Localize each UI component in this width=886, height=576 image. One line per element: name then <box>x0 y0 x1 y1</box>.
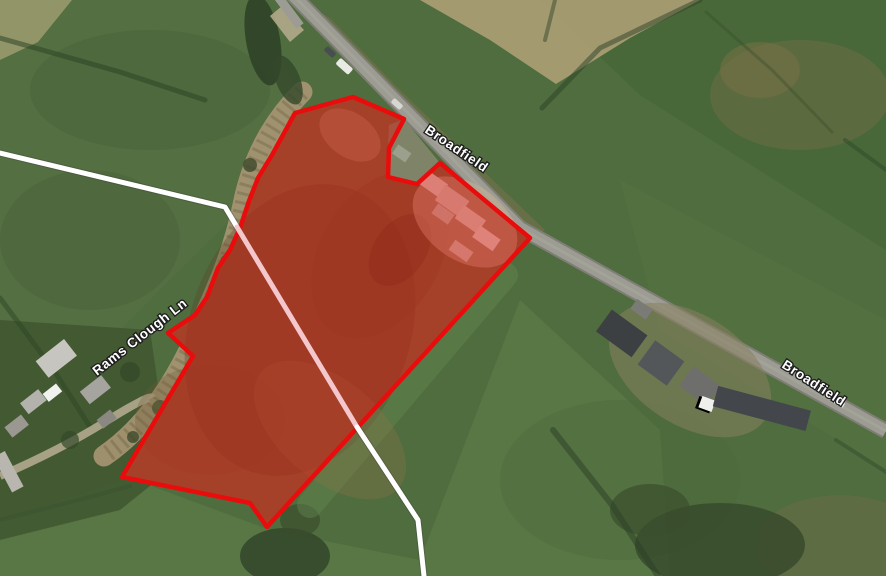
satellite-map: Broadfield Broadfield Rams Clough Ln <box>0 0 886 576</box>
